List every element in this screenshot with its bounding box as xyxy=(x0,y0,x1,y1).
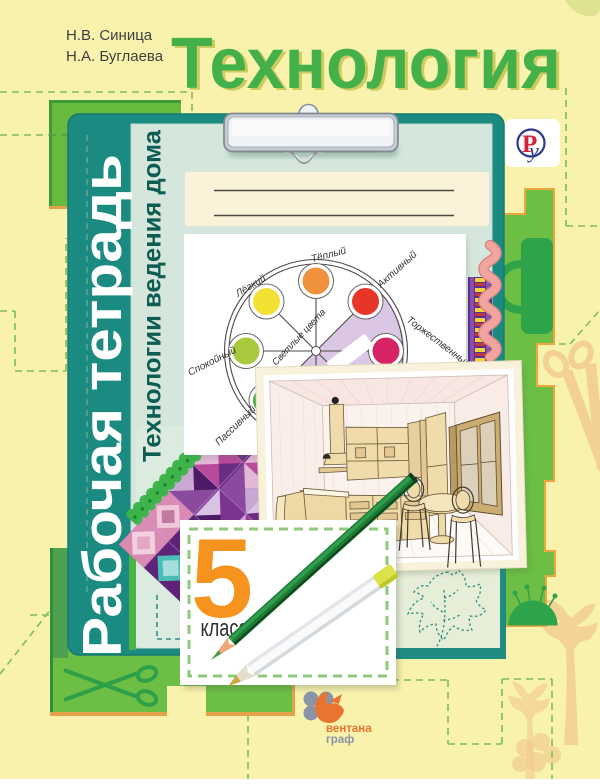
svg-text:Рабочая тетрадь: Рабочая тетрадь xyxy=(71,154,133,657)
svg-text:Н.В. Синица: Н.В. Синица xyxy=(66,27,153,44)
svg-text:Технология: Технология xyxy=(171,24,561,104)
svg-text:Технологии ведения дома: Технологии ведения дома xyxy=(139,129,167,462)
svg-text:граф: граф xyxy=(326,734,354,746)
svg-text:Н.А. Буглаева: Н.А. Буглаева xyxy=(66,48,164,65)
svg-text:у: у xyxy=(527,138,539,163)
